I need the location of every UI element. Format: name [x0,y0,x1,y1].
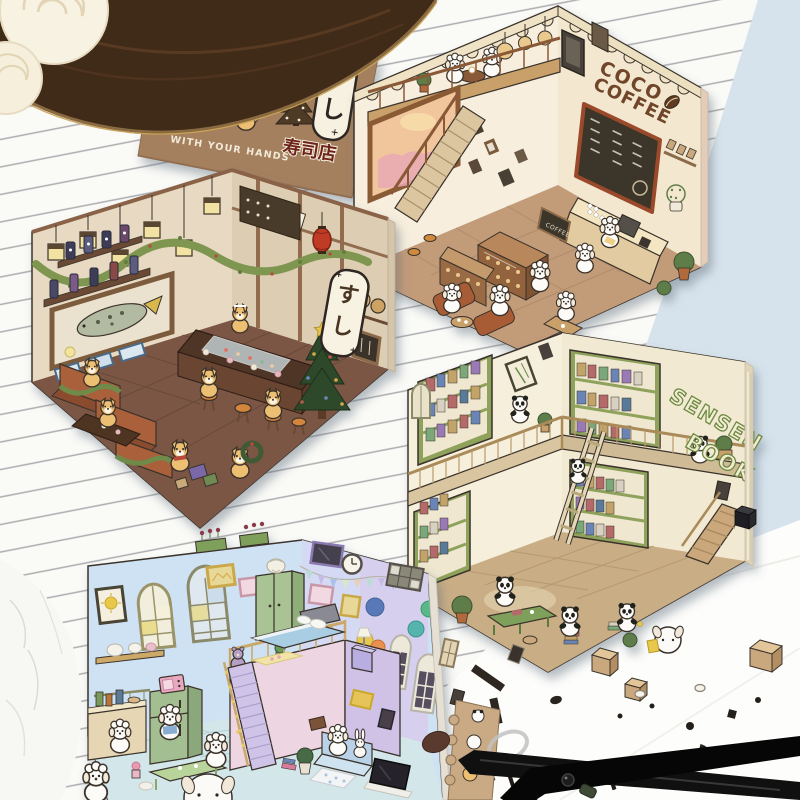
card-edge [388,219,395,372]
poodle-dog [205,732,228,767]
bedroom-card [83,522,450,800]
floor-books [282,758,297,770]
dark-cube-sticker [735,506,756,529]
shiba-dog [264,389,281,419]
card-edge [745,362,753,566]
crate-sticker [625,678,647,701]
crate-sticker [592,648,618,676]
svg-text:し: し [329,313,355,341]
svg-text:し: し [319,94,347,125]
wall-clock [343,555,362,574]
shiba-dog [100,398,117,427]
poodle-dog [83,762,109,800]
poodle-dog [328,724,348,755]
pumpkin [267,559,285,573]
scissor-pivot [562,774,574,786]
shiba-dog [200,368,217,398]
card-edge [701,88,708,267]
dog-sticker [179,774,236,800]
arched-window [412,384,430,418]
svg-text:す: す [335,282,361,310]
shiba-dog [84,358,101,387]
wall-tv [311,542,344,567]
photo-stage: WITH YOUR HANDS 寿司店 す し [0,0,800,800]
cooking-dog [159,704,182,739]
crate-sticker [750,640,782,672]
grid-window [386,563,423,591]
pink-flower-pot [132,762,140,778]
bookshelf [570,350,660,448]
poodle-dog [109,719,131,753]
sun-picture [96,587,126,624]
chef-shiba [232,304,249,333]
microwave [159,674,185,693]
scalloped-sticker-strip [445,700,500,800]
